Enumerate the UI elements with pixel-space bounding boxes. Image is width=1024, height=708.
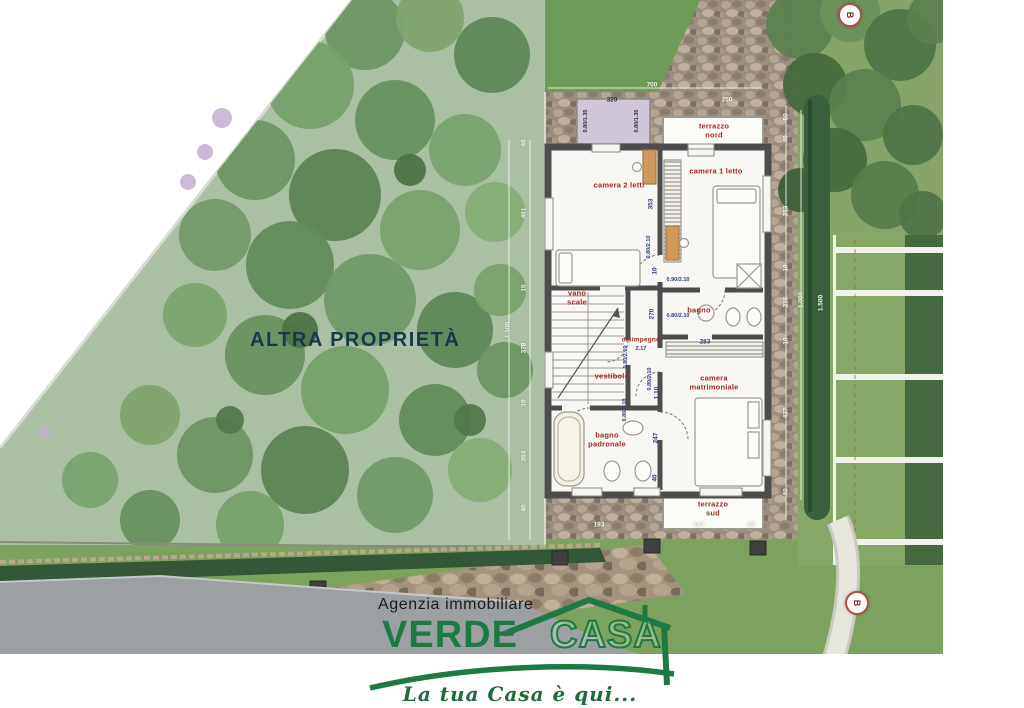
tree-canopy xyxy=(465,182,525,242)
tree-canopy xyxy=(883,105,943,165)
parking-divider-line xyxy=(833,374,943,380)
bottom-band xyxy=(0,654,1024,708)
lavender-shrub xyxy=(212,108,232,128)
tree-canopy xyxy=(246,221,334,309)
desk-1 xyxy=(643,150,656,184)
desk-2 xyxy=(666,226,679,260)
tree-canopy xyxy=(477,342,533,398)
parking-divider-line xyxy=(833,290,943,296)
site-plan-graphic xyxy=(0,0,1024,708)
tree-canopy xyxy=(394,154,426,186)
lavender-shrub xyxy=(180,174,196,190)
tree-canopy xyxy=(282,312,318,348)
tree-canopy xyxy=(120,385,180,445)
tree-canopy xyxy=(899,191,947,239)
tree-canopy xyxy=(177,417,253,493)
tree-canopy xyxy=(355,80,435,160)
tree-canopy xyxy=(448,438,512,502)
sink-master xyxy=(623,421,643,435)
bidet xyxy=(747,308,761,326)
tree-canopy xyxy=(216,406,244,434)
tree-canopy xyxy=(62,452,118,508)
sink xyxy=(698,305,714,321)
tree-canopy xyxy=(454,17,530,93)
tree-canopy xyxy=(454,404,486,436)
tree-canopy xyxy=(261,426,349,514)
wall-post xyxy=(644,539,660,553)
bidet-master xyxy=(635,461,651,481)
east-hedge xyxy=(804,95,830,520)
right-margin xyxy=(943,0,1024,708)
tree-canopy xyxy=(429,114,501,186)
site-plan-scene: ALTRA PROPRIETÀ terrazzo nord camera 2 l… xyxy=(0,0,1024,708)
tree-canopy xyxy=(163,283,227,347)
parking-divider-line xyxy=(833,247,943,253)
tree-canopy xyxy=(474,264,526,316)
entry-porch xyxy=(577,99,650,144)
lavender-shrub xyxy=(197,144,213,160)
tree-canopy xyxy=(380,190,460,270)
parking-divider-line xyxy=(833,457,943,463)
wall-post xyxy=(552,551,568,565)
toilet-master xyxy=(604,461,620,481)
wardrobe-matrimoniale xyxy=(666,342,763,357)
parking-strip xyxy=(833,235,943,565)
tree-canopy xyxy=(301,346,389,434)
wall-post xyxy=(750,541,766,555)
tree-canopy xyxy=(120,490,180,550)
tree-canopy xyxy=(179,199,251,271)
building-floor-plan xyxy=(545,99,771,529)
tree-canopy xyxy=(357,457,433,533)
lavender-shrub xyxy=(39,426,51,438)
tree-canopy xyxy=(324,254,416,346)
toilet xyxy=(726,308,740,326)
